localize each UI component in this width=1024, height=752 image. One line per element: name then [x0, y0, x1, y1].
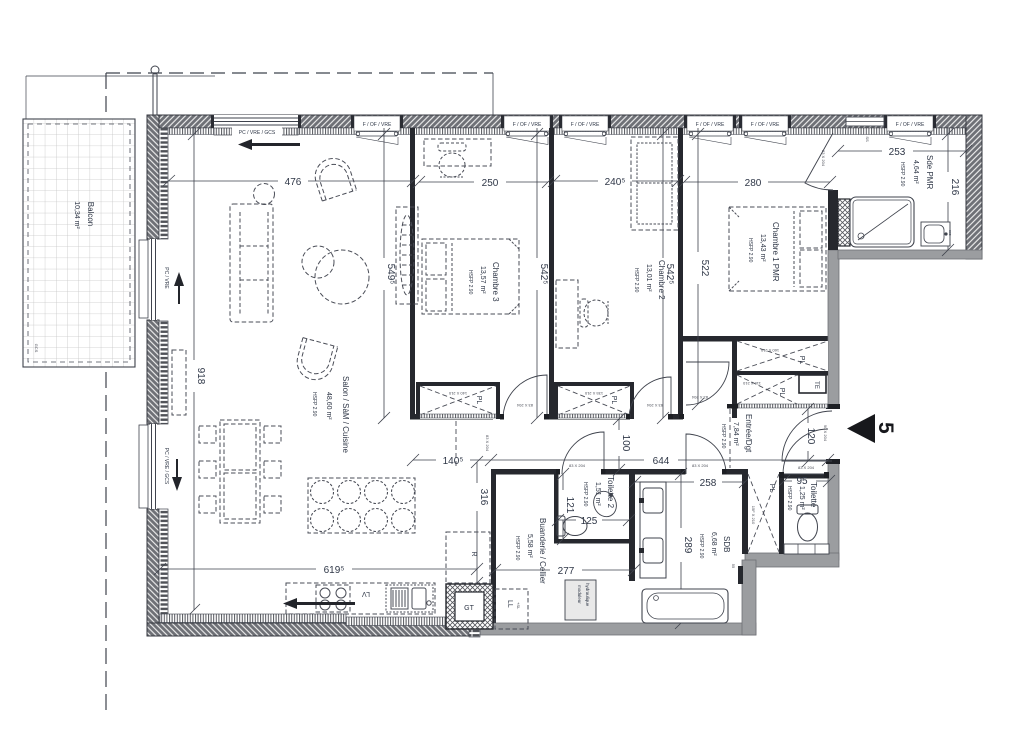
svg-text:Buanderie / Cellier: Buanderie / Cellier [538, 518, 547, 584]
svg-text:GCS: GCS [34, 344, 39, 353]
svg-text:48,60 m²: 48,60 m² [325, 392, 332, 420]
svg-text:83 X 204: 83 X 204 [569, 463, 586, 468]
svg-text:TE: TE [813, 381, 819, 389]
svg-text:Balcon: Balcon [86, 202, 95, 226]
svg-text:83 X 204: 83 X 204 [821, 150, 826, 167]
svg-text:120: 120 [805, 428, 816, 445]
svg-text:Sde PMR: Sde PMR [925, 155, 934, 189]
svg-text:hydraulique: hydraulique [585, 583, 590, 607]
svg-text:+SL: +SL [516, 602, 521, 610]
svg-text:ecs: ecs [948, 230, 952, 236]
svg-text:HSFP 2.90: HSFP 2.90 [514, 536, 520, 561]
svg-text:PL: PL [768, 484, 775, 493]
svg-text:83 X 204: 83 X 204 [516, 403, 533, 408]
svg-text:250: 250 [482, 178, 499, 189]
svg-text:125: 125 [581, 516, 598, 527]
svg-text:F / OF / VRE: F / OF / VRE [363, 122, 392, 128]
svg-text:F / OF / VRE: F / OF / VRE [571, 122, 600, 128]
svg-text:95: 95 [796, 476, 808, 487]
svg-text:PL: PL [778, 388, 785, 397]
svg-text:83 X 204: 83 X 204 [485, 435, 490, 452]
svg-text:HSFP 2.90: HSFP 2.90 [698, 534, 704, 559]
svg-text:644: 644 [653, 456, 670, 467]
svg-text:216: 216 [949, 179, 960, 196]
svg-text:PL: PL [610, 396, 617, 405]
svg-text:277: 277 [558, 566, 575, 577]
svg-text:110 X 210: 110 X 210 [742, 381, 761, 386]
svg-text:HSFP 2.90: HSFP 2.90 [311, 392, 317, 417]
svg-text:135 X 210: 135 X 210 [584, 391, 603, 396]
svg-text:316: 316 [478, 489, 489, 506]
svg-text:10,34 m²: 10,34 m² [73, 201, 80, 229]
svg-text:R: R [470, 551, 477, 556]
svg-text:5,58 m²: 5,58 m² [526, 534, 533, 558]
svg-text:160 X 210: 160 X 210 [760, 348, 779, 353]
svg-text:280: 280 [745, 178, 762, 189]
svg-text:5: 5 [874, 422, 897, 434]
svg-text:HSFP 2.90: HSFP 2.90 [899, 162, 905, 187]
svg-text:1,51 m²: 1,51 m² [594, 482, 601, 506]
svg-text:HSFP 2.90: HSFP 2.90 [633, 268, 639, 293]
svg-text:258: 258 [700, 478, 717, 489]
svg-text:140⁵: 140⁵ [443, 456, 464, 467]
svg-text:4,64 m²: 4,64 m² [912, 160, 919, 184]
svg-text:Entrée/Dgt: Entrée/Dgt [744, 414, 753, 453]
svg-text:HSFP 2.90: HSFP 2.90 [582, 482, 588, 507]
svg-text:PL: PL [798, 356, 805, 365]
svg-text:13,01 m²: 13,01 m² [645, 264, 652, 292]
svg-text:918: 918 [195, 368, 206, 385]
svg-text:90 X 204: 90 X 204 [823, 425, 828, 442]
svg-text:7,84 m²: 7,84 m² [732, 422, 739, 446]
svg-text:253: 253 [889, 147, 906, 158]
svg-text:F / OF / VRE: F / OF / VRE [896, 122, 925, 128]
svg-text:SS: SS [865, 136, 870, 142]
svg-text:PC / VRE / GCS: PC / VRE / GCS [163, 448, 169, 485]
svg-text:Chambre 3: Chambre 3 [491, 262, 500, 302]
svg-text:moduleur: moduleur [577, 585, 582, 604]
svg-text:F / OF / VRE: F / OF / VRE [751, 122, 780, 128]
svg-text:100: 100 [620, 435, 631, 452]
svg-text:619⁵: 619⁵ [324, 565, 345, 576]
svg-text:542⁵: 542⁵ [664, 264, 675, 285]
svg-text:1,25 m²: 1,25 m² [798, 486, 805, 510]
svg-text:55: 55 [731, 564, 736, 569]
svg-text:121: 121 [564, 497, 575, 514]
svg-text:13,57 m²: 13,57 m² [479, 266, 486, 294]
svg-text:13,43 m²: 13,43 m² [759, 234, 766, 262]
svg-text:HSFP 2.90: HSFP 2.90 [747, 238, 753, 263]
svg-text:83 X 204: 83 X 204 [691, 395, 708, 400]
svg-text:15F X 210: 15F X 210 [751, 506, 756, 525]
svg-text:F / OF / VRE: F / OF / VRE [513, 122, 542, 128]
svg-text:HSFP 2.90: HSFP 2.90 [720, 424, 726, 449]
svg-text:476: 476 [285, 177, 302, 188]
svg-text:549⁵: 549⁵ [385, 264, 396, 285]
svg-text:542⁵: 542⁵ [538, 264, 549, 285]
svg-text:Salon / SàM / Cuisine: Salon / SàM / Cuisine [341, 376, 350, 453]
svg-text:HSFP 2.90: HSFP 2.90 [467, 270, 473, 295]
svg-text:140 X 210: 140 X 210 [448, 391, 467, 396]
svg-text:240⁵: 240⁵ [605, 177, 626, 188]
svg-text:F / OF / VRE: F / OF / VRE [696, 122, 725, 128]
svg-text:6,68 m²: 6,68 m² [710, 532, 717, 556]
svg-text:PC / VRE / GCS: PC / VRE / GCS [239, 130, 276, 136]
svg-text:PC / VRE: PC / VRE [163, 267, 169, 289]
svg-text:289: 289 [682, 537, 693, 554]
svg-text:Chambre 1 PMR: Chambre 1 PMR [771, 222, 780, 282]
svg-text:522: 522 [699, 260, 710, 277]
svg-text:SDB: SDB [722, 536, 731, 552]
svg-text:83 X 204: 83 X 204 [646, 403, 663, 408]
svg-text:LL: LL [506, 600, 513, 608]
svg-text:GT: GT [464, 605, 474, 612]
svg-text:Toilette: Toilette [809, 482, 818, 508]
svg-text:83 X 204: 83 X 204 [798, 465, 815, 470]
svg-text:HSFP 2.90: HSFP 2.90 [786, 486, 792, 511]
svg-text:83 X 204: 83 X 204 [692, 463, 709, 468]
svg-text:PL: PL [475, 396, 482, 405]
svg-text:LV: LV [362, 590, 370, 597]
